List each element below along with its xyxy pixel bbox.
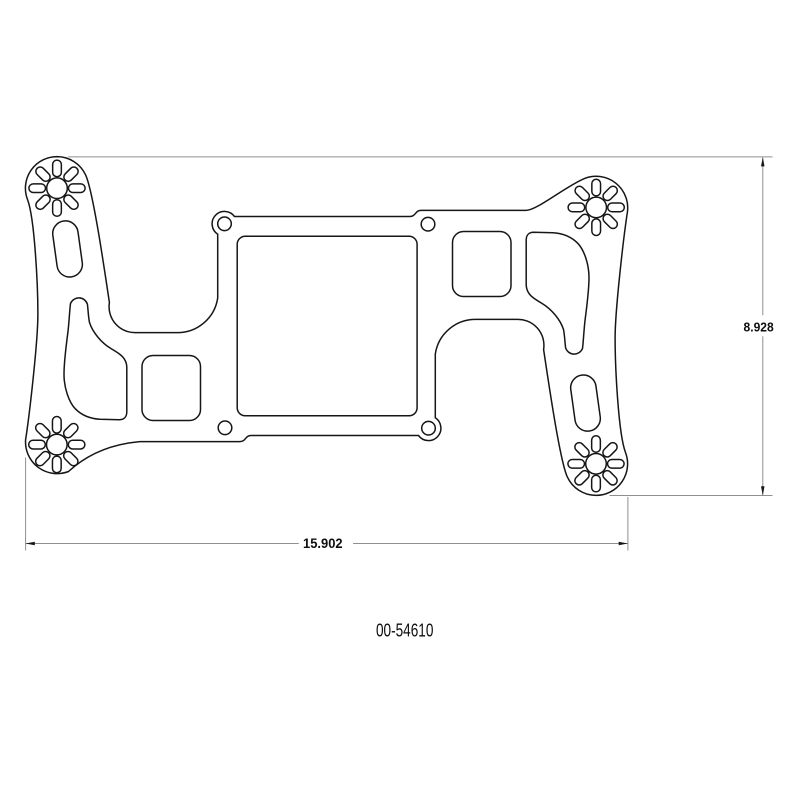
svg-text:8.928: 8.928 — [744, 319, 774, 334]
svg-text:00-54610: 00-54610 — [376, 620, 433, 641]
svg-text:15.902: 15.902 — [303, 536, 343, 551]
